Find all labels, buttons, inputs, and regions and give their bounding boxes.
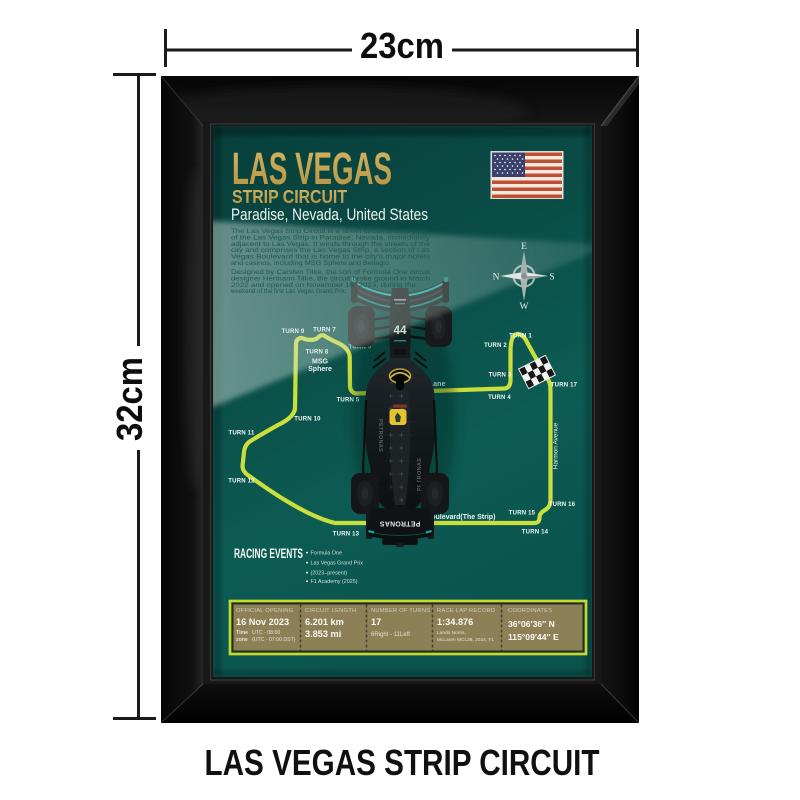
svg-text:TURN 16: TURN 16 [549, 502, 576, 508]
svg-text:F1 Academy (2025): F1 Academy (2025) [311, 579, 358, 585]
svg-text:and casinos, including MSG Sph: and casinos, including MSG Sphere and Be… [231, 260, 391, 267]
svg-text:PETRONAS: PETRONAS [380, 520, 421, 527]
svg-text:16 Nov 2023: 16 Nov 2023 [236, 617, 289, 627]
svg-text:TURN 13: TURN 13 [333, 532, 360, 538]
svg-text:(UTC - 07:00 DST): (UTC - 07:00 DST) [252, 637, 296, 643]
svg-text:Las Vegas Grand Prix: Las Vegas Grand Prix [311, 561, 364, 567]
svg-text:32cm: 32cm [109, 357, 150, 441]
svg-text:TURN 15: TURN 15 [509, 511, 536, 517]
svg-text:TURN 11: TURN 11 [228, 431, 255, 437]
svg-text:COORDINATES: COORDINATES [508, 608, 552, 614]
svg-text:(2023–present): (2023–present) [311, 571, 348, 577]
svg-text:CIRCUIT LENGTH: CIRCUIT LENGTH [305, 608, 356, 614]
svg-text:6Right - 11Left: 6Right - 11Left [371, 632, 410, 638]
svg-text:3.853 mi: 3.853 mi [305, 629, 341, 639]
svg-text:McLaren MCL38, 2024, F1: McLaren MCL38, 2024, F1 [437, 637, 494, 643]
svg-text:TURN 10: TURN 10 [294, 417, 321, 423]
svg-text:RACING EVENTS: RACING EVENTS [234, 546, 303, 561]
svg-text:TURN 12: TURN 12 [228, 479, 255, 485]
svg-text:115°09′44″ E: 115°09′44″ E [508, 632, 559, 642]
svg-text:Lando Norris,: Lando Norris, [437, 630, 466, 636]
svg-text:TURN 17: TURN 17 [551, 383, 578, 389]
svg-text:Harmon Avenue: Harmon Avenue [553, 422, 560, 469]
svg-text:Paradise, Nevada, United State: Paradise, Nevada, United States [231, 206, 428, 224]
svg-text:17: 17 [371, 617, 381, 627]
svg-text:W: W [520, 302, 529, 312]
svg-text:S: S [549, 273, 554, 283]
svg-text:weekend of the first Las Vegas: weekend of the first Las Vegas Grand Pri… [230, 288, 347, 295]
svg-text:1:34.876: 1:34.876 [437, 617, 473, 627]
svg-text:OFFICIAL OPENING: OFFICIAL OPENING [236, 608, 294, 614]
svg-text:zone: zone [236, 637, 248, 643]
svg-text:PETRONAS: PETRONAS [377, 419, 383, 452]
svg-text:36°06′36″ N: 36°06′36″ N [508, 619, 555, 629]
svg-text:Sphere: Sphere [308, 366, 332, 373]
svg-text:TURN 4: TURN 4 [488, 395, 511, 401]
svg-text:TURN 3: TURN 3 [489, 373, 512, 379]
svg-text:TURN 2: TURN 2 [484, 343, 507, 349]
svg-text:23cm: 23cm [360, 25, 444, 66]
svg-text:TURN 14: TURN 14 [522, 530, 549, 536]
svg-text:Formula One: Formula One [311, 551, 342, 557]
svg-text:LAS VEGAS STRIP CIRCUIT: LAS VEGAS STRIP CIRCUIT [205, 742, 600, 783]
svg-text:UTC - 08:00: UTC - 08:00 [252, 630, 280, 636]
svg-text:RACE LAP RECORD: RACE LAP RECORD [437, 608, 495, 614]
svg-text:STRIP CIRCUIT: STRIP CIRCUIT [232, 186, 348, 207]
svg-text:NUMBER OF TURNS: NUMBER OF TURNS [371, 608, 430, 614]
svg-text:TURN 1: TURN 1 [509, 334, 532, 340]
svg-text:6.201 km: 6.201 km [305, 617, 344, 627]
svg-text:Time: Time [236, 630, 248, 636]
